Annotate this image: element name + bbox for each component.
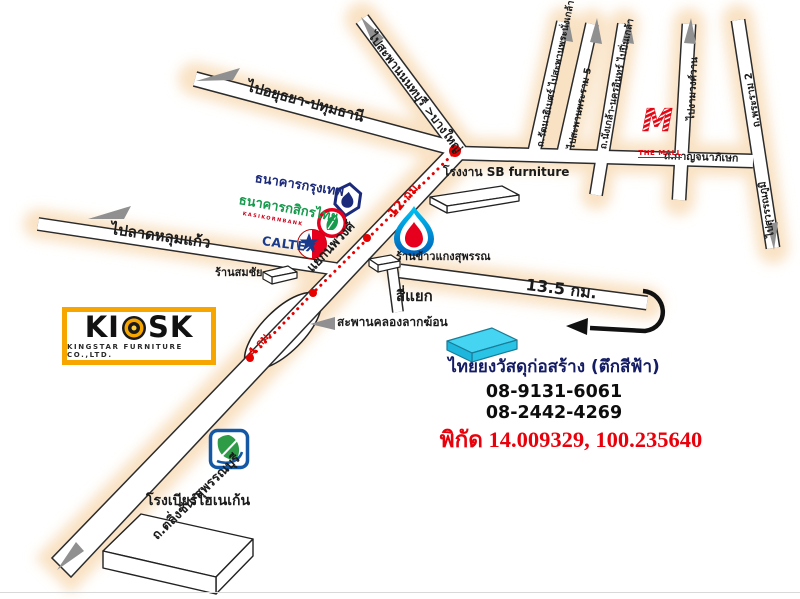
rice-shop-label: ร้านข้าวแกงสุพรรณ xyxy=(396,251,491,263)
crossroads-label: สี่แยก xyxy=(396,288,433,305)
the-mall-logo: M THE MALL xyxy=(637,104,683,159)
destination-phone-2: 08-2442-4269 xyxy=(440,404,668,423)
kiosk-subtitle: KINGSTAR FURNITURE CO.,LTD. xyxy=(67,343,211,359)
sb-factory-label: โรงงาน SB furniture xyxy=(443,166,569,179)
the-mall-monogram: M xyxy=(640,104,680,136)
heineken-brewery-label: โรงเบียร์ไฮเนเก้น xyxy=(146,494,250,509)
kiosk-target-icon xyxy=(121,315,147,341)
svg-text:M: M xyxy=(642,104,673,136)
waypoint-dot xyxy=(363,234,371,242)
kiosk-letters-right: SK xyxy=(148,313,193,342)
waypoint-dot xyxy=(309,289,317,297)
somchai-shop-label: ร้านสมชัย xyxy=(215,267,262,279)
destination-coordinates: พิกัด 14.009329, 100.235640 xyxy=(388,428,754,453)
bridge-label: สะพานคลองลากฆ้อน xyxy=(337,316,448,329)
destination-phone-1: 08-9131-6061 xyxy=(440,383,668,402)
page-edge-line xyxy=(0,592,800,593)
kiosk-letters-left: KI xyxy=(85,313,120,342)
destination-name: ไทยยงวัสดุก่อสร้าง (ตึกสีฟ้า) xyxy=(440,358,668,377)
the-mall-label: THE MALL xyxy=(638,149,681,158)
kiosk-logo: KI SK KINGSTAR FURNITURE CO.,LTD. xyxy=(62,307,216,365)
route-map: ไปอยุธยา-ปทุมธานี ไปสะพานนนทบุรี >บางใหญ… xyxy=(0,0,800,599)
